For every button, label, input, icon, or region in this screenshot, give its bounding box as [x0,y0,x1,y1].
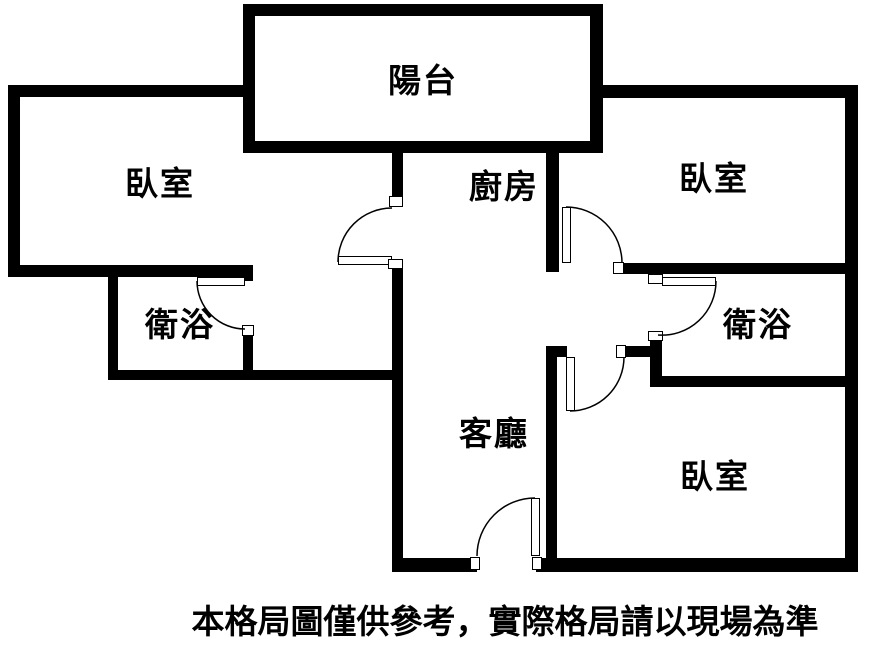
wall-bath-right-south [650,376,845,387]
bedroom-tr-door-jamb-far [613,262,624,274]
room-label-bedroom-top-right: 臥室 [679,152,749,200]
disclaimer-text: 本格局圖僅供參考，實際格局請以現場為準 [192,595,819,643]
room-label-living-room: 客廳 [459,407,529,455]
wall-kitchen-east [546,141,559,272]
bedroom-tr-door-arc [566,207,622,263]
kitchen-door-leaf [338,256,392,265]
wall-south-east-segment [536,558,845,572]
room-label-kitchen: 廚房 [469,160,539,208]
kitchen-door-arc [338,208,392,262]
wall-bath-left-south [108,370,402,380]
wall-bedroom-left-west [8,85,20,277]
bedroom-br-door-leaf [566,357,575,411]
bath-right-door-leaf [662,277,716,286]
bedroom-br-door-jamb-far [616,345,626,358]
wall-living-east [546,346,557,572]
wall-bedroom-left-bottom [8,265,253,277]
wall-hall-south-right [625,346,650,357]
wall-bedroom-tr-top [590,85,858,98]
kitchen-door-jamb-hinge [388,259,403,269]
wall-balcony-right [590,4,603,153]
entry-door-jamb-far [470,557,480,570]
wall-balcony-left [243,4,255,153]
room-label-bath-left: 衛浴 [145,298,215,346]
bath-right-door-arc [658,281,716,335]
entry-door-jamb-hinge [532,557,542,570]
floor-plan: 陽台 臥室 廚房 臥室 衛浴 衛浴 客廳 臥室 本格局圖僅供參考，實際格局請以現… [0,0,889,647]
bedroom-br-door-arc [570,357,624,411]
wall-balcony-top [243,4,603,16]
wall-center-lower [392,262,403,568]
wall-south-west-segment [392,558,477,572]
wall-bath-left-west [108,272,118,380]
room-label-bath-right: 衛浴 [723,298,793,346]
wall-bedroom-left-top [8,85,255,97]
entry-door-leaf [531,498,540,556]
bath-right-door-jamb-bottom [648,331,663,341]
wall-east [845,85,858,572]
room-label-bedroom-bottom-right: 臥室 [680,450,750,498]
bath-right-door-jamb-top [648,274,663,284]
kitchen-door-jamb-top [389,196,403,207]
room-label-bedroom-left: 臥室 [125,157,195,205]
bedroom-tr-door-leaf [562,207,571,263]
entry-door-arc [477,498,535,556]
bath-left-door-jamb-bottom [242,325,254,336]
room-label-balcony: 陽台 [388,54,458,102]
wall-center-upper [392,141,403,203]
bath-left-door-leaf [197,277,245,286]
wall-bath-left-east [243,330,253,375]
